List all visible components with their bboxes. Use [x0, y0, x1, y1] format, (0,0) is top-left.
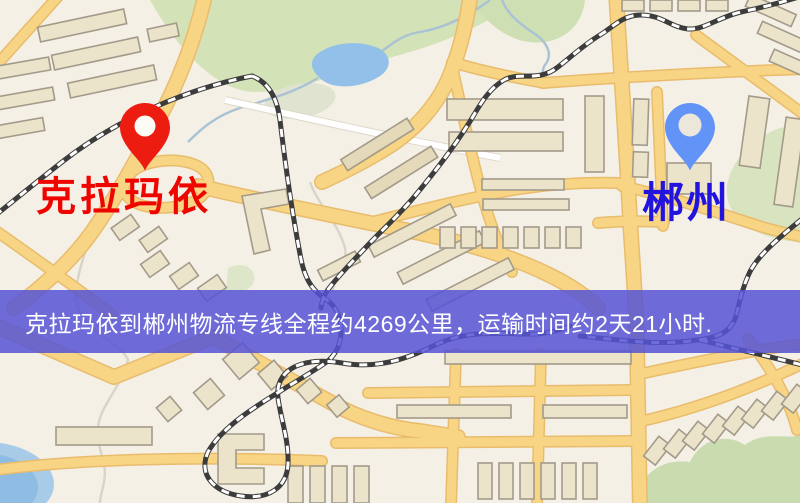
map-screenshot: 克拉玛依 郴州 克拉玛依到郴州物流专线全程约4269公里，运输时间约2天21小时… [0, 0, 800, 503]
destination-pin-hole [679, 114, 702, 137]
route-info-text: 克拉玛依到郴州物流专线全程约4269公里，运输时间约2天21小时. [25, 305, 712, 339]
route-info-banner: 克拉玛依到郴州物流专线全程约4269公里，运输时间约2天21小时. [0, 290, 800, 353]
map-canvas [0, 0, 800, 503]
origin-pin-shape [120, 103, 170, 171]
origin-pin-hole [135, 116, 156, 137]
origin-pin-icon [119, 102, 171, 172]
destination-marker [664, 102, 716, 172]
destination-pin-icon [664, 102, 716, 172]
destination-pin-shape [665, 103, 715, 171]
origin-marker [119, 102, 171, 172]
origin-city-label: 克拉玛依 [36, 177, 212, 217]
destination-city-label: 郴州 [642, 182, 730, 224]
